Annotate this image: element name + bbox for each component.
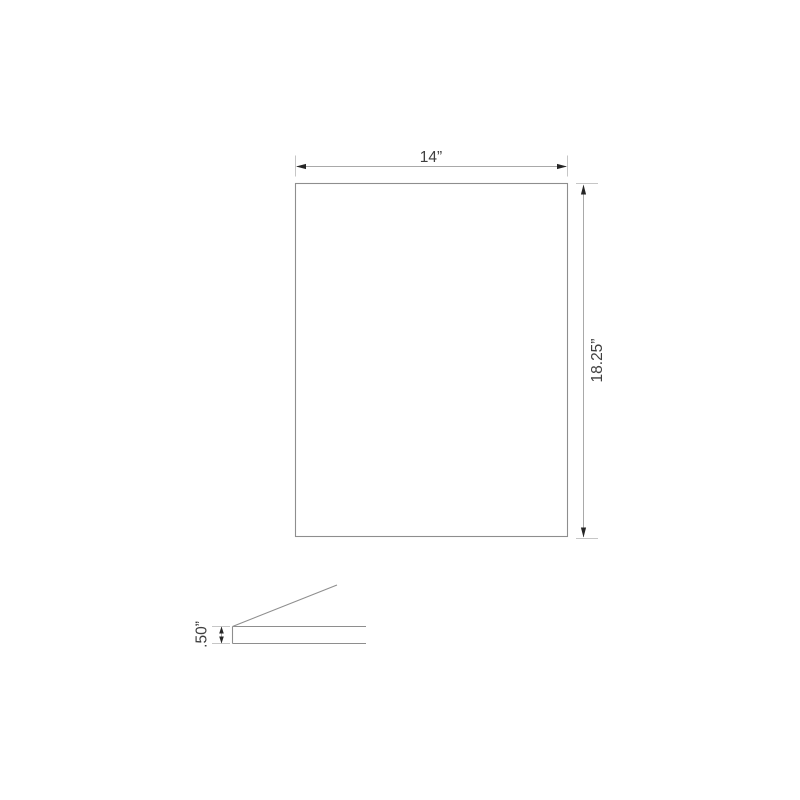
- width-dimension: 14”: [296, 149, 568, 177]
- side-view: [233, 585, 367, 644]
- width-dimension-label: 14”: [420, 149, 442, 166]
- thickness-arrowhead-bottom: [219, 637, 224, 644]
- height-dimension-label: 18.25”: [589, 339, 606, 383]
- height-arrowhead-top: [581, 185, 586, 195]
- height-dimension: 18.25”: [576, 184, 606, 539]
- thickness-dimension-label: .50”: [194, 621, 211, 648]
- technical-drawing-canvas: 14” 18.25” .50”: [0, 0, 800, 800]
- thickness-arrowhead-top: [219, 627, 224, 634]
- height-arrowhead-bottom: [581, 528, 586, 538]
- thickness-dimension: .50”: [194, 621, 231, 648]
- front-view: [296, 184, 568, 537]
- width-arrowhead-right: [557, 164, 567, 169]
- width-arrowhead-left: [296, 164, 306, 169]
- side-view-diagonal-line: [233, 585, 338, 627]
- front-view-outline: [296, 184, 568, 537]
